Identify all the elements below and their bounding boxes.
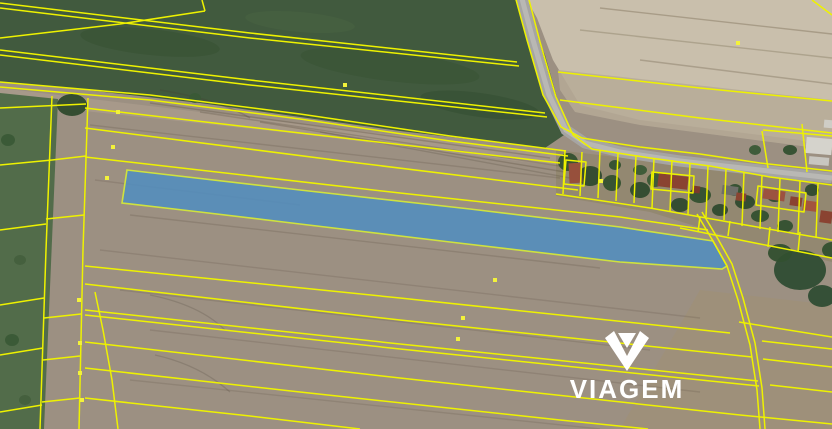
tree bbox=[671, 198, 689, 212]
tree bbox=[14, 255, 26, 265]
tree bbox=[712, 204, 728, 216]
cadastral-map: VIAGEM bbox=[0, 0, 832, 429]
tree bbox=[5, 334, 19, 346]
parcel-number-marker bbox=[493, 278, 497, 282]
tree bbox=[783, 145, 797, 155]
tree bbox=[609, 160, 621, 170]
parcel-number-marker bbox=[456, 337, 460, 341]
parcel-number-marker bbox=[78, 341, 82, 345]
building-roof bbox=[735, 192, 746, 201]
tree bbox=[1, 134, 15, 146]
parcel-number-marker bbox=[116, 110, 120, 114]
building-roof bbox=[805, 137, 832, 155]
parcel-number-marker bbox=[77, 298, 81, 302]
parcel-number-marker bbox=[343, 83, 347, 87]
tree bbox=[630, 182, 650, 198]
building-roof bbox=[789, 196, 802, 207]
parcel-number-marker bbox=[599, 179, 603, 183]
parcel-number-marker bbox=[80, 398, 84, 402]
building-roof bbox=[824, 120, 832, 129]
parcel-number-marker bbox=[736, 41, 740, 45]
tree bbox=[19, 395, 31, 405]
parcel-number-marker bbox=[461, 316, 465, 320]
tree bbox=[749, 145, 761, 155]
building-roof bbox=[819, 210, 832, 224]
parcel-number-marker bbox=[111, 145, 115, 149]
parcel-number-marker bbox=[78, 371, 82, 375]
aerial-map-canvas bbox=[0, 0, 832, 429]
tree bbox=[603, 175, 621, 191]
parcel-number-marker bbox=[105, 176, 109, 180]
